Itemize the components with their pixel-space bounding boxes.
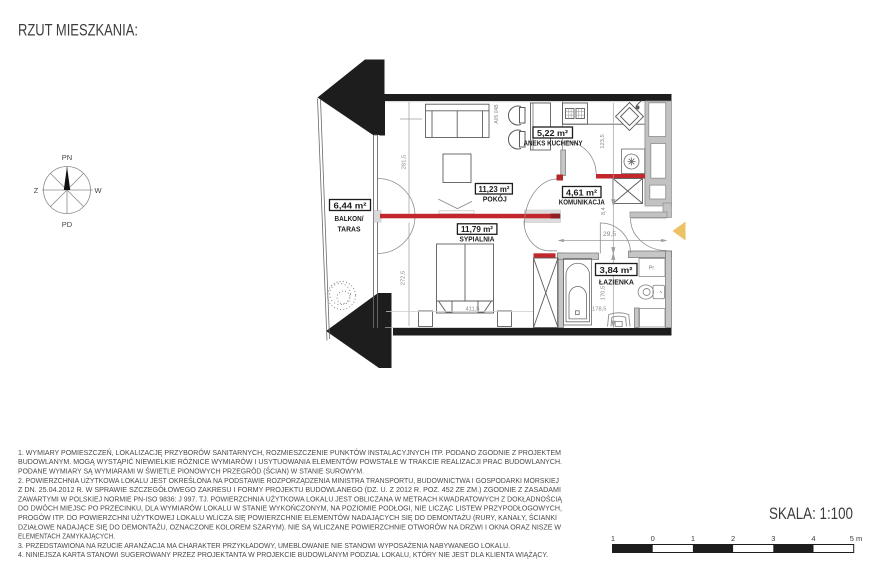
svg-text:123,5: 123,5: [600, 134, 606, 149]
svg-text:BUDOWLANYM. MOGĄ WYSTĄPIĆ NIEW: BUDOWLANYM. MOGĄ WYSTĄPIĆ NIEWIELKIE RÓŻ…: [18, 457, 562, 466]
svg-text:0: 0: [651, 534, 655, 543]
svg-text:3. PRZEDSTAWIONA NA RZUCIE ARA: 3. PRZEDSTAWIONA NA RZUCIE ARANŻACJA MA …: [18, 541, 510, 550]
svg-text:W: W: [94, 186, 102, 195]
svg-text:272,5: 272,5: [401, 271, 407, 286]
svg-text:DZIAŁOWE NADAJĄCE SIĘ DO DEMON: DZIAŁOWE NADAJĄCE SIĘ DO DEMONTAŻU, OZNA…: [18, 522, 561, 531]
svg-text:6,44 m²: 6,44 m²: [334, 200, 367, 210]
svg-text:11,79 m²: 11,79 m²: [461, 224, 493, 234]
svg-text:2. POWIERZCHNIA UŻYTKOWA LOKAL: 2. POWIERZCHNIA UŻYTKOWA LOKALU JEST OKR…: [18, 476, 559, 485]
svg-text:DO DWÓCH MIEJSC PO PRZECINKU,: DO DWÓCH MIEJSC PO PRZECINKU, DLA WYMIAR…: [18, 504, 562, 513]
svg-text:PROGÓW ITP. DO POWIERZCHNI UŻY: PROGÓW ITP. DO POWIERZCHNI UŻYTKOWEJ LOK…: [18, 513, 557, 522]
svg-text:170,5: 170,5: [601, 286, 607, 301]
svg-text:ANEKS KUCHENNY: ANEKS KUCHENNY: [524, 139, 583, 148]
svg-text:2: 2: [731, 534, 735, 543]
svg-text:SKALA: 1:100: SKALA: 1:100: [769, 504, 853, 523]
svg-text:KOMUNIKACJA: KOMUNIKACJA: [559, 198, 605, 207]
svg-text:Z: Z: [34, 186, 39, 195]
svg-text:PODANE WYMIARY SĄ WYMIARAMI W: PODANE WYMIARY SĄ WYMIARAMI W ŚWIETLE PI…: [18, 467, 364, 476]
svg-text:4: 4: [811, 534, 815, 543]
svg-text:29,5: 29,5: [603, 231, 616, 238]
svg-text:PN: PN: [62, 153, 72, 162]
svg-text:POKÓJ: POKÓJ: [483, 195, 507, 204]
svg-text:411,5: 411,5: [465, 307, 479, 313]
svg-text:Pr: Pr: [649, 266, 655, 272]
svg-text:5,22 m²: 5,22 m²: [537, 128, 568, 138]
svg-text:11,23 m²: 11,23 m²: [479, 184, 510, 194]
svg-text:3,84 m²: 3,84 m²: [600, 265, 633, 275]
svg-text:281,5: 281,5: [402, 155, 408, 170]
svg-text:SYPIALNIA: SYPIALNIA: [460, 235, 496, 244]
svg-text:5 m: 5 m: [850, 534, 863, 543]
svg-text:TARAS: TARAS: [338, 225, 361, 234]
svg-text:1: 1: [611, 534, 615, 543]
svg-text:4,61 m²: 4,61 m²: [566, 187, 597, 197]
svg-text:178,5: 178,5: [592, 307, 607, 313]
svg-text:BALKON/: BALKON/: [335, 214, 365, 223]
svg-text:3: 3: [771, 534, 775, 543]
svg-text:8,4: 8,4: [601, 207, 607, 215]
svg-text:Z DN. 25.04.2012 R. W SPRAWIE: Z DN. 25.04.2012 R. W SPRAWIE SZCZEGÓŁOW…: [18, 485, 561, 494]
svg-text:ELEMENTACH ZAMYKAJĄCYCH.: ELEMENTACH ZAMYKAJĄCYCH.: [18, 533, 115, 541]
svg-text:ŁAZIENKA: ŁAZIENKA: [599, 278, 635, 287]
svg-text:1: 1: [691, 534, 695, 543]
svg-text:4. NINIEJSZA KARTA STANOWI SUG: 4. NINIEJSZA KARTA STANOWI SUGEROWANY PR…: [18, 550, 548, 559]
svg-text:1. WYMIARY POMIESZCZEŃ, LOKALI: 1. WYMIARY POMIESZCZEŃ, LOKALIZACJĘ PRZY…: [18, 448, 561, 457]
svg-text:PD: PD: [62, 220, 73, 229]
svg-text:RZUT MIESZKANIA:: RZUT MIESZKANIA:: [18, 22, 138, 40]
svg-text:A05 04B: A05 04B: [494, 104, 500, 124]
svg-text:ZAWARTYMI W POLSKIEJ NORMIE PN: ZAWARTYMI W POLSKIEJ NORMIE PN-ISO 9836:…: [18, 494, 562, 503]
